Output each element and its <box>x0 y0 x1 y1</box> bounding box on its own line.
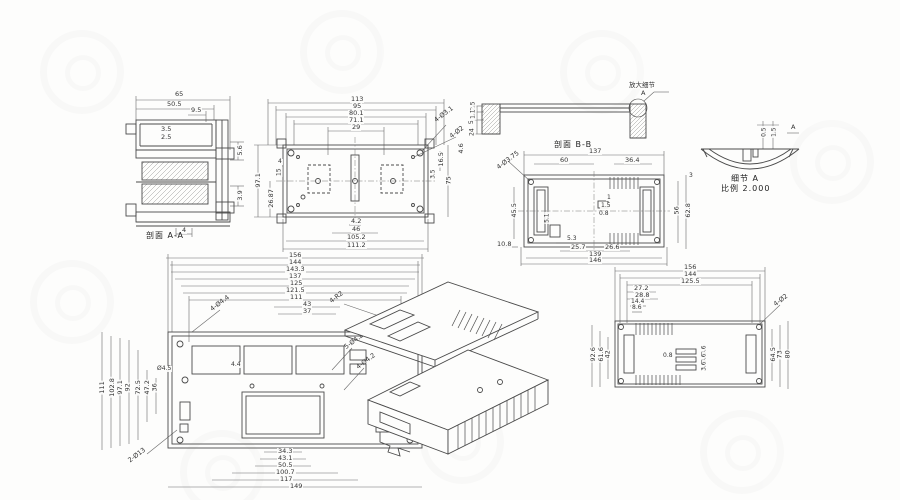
view-base: 137 60 36.4 5.3 25.7 26.6 139 146 45.5 1… <box>494 147 696 267</box>
view-section-aa: 65 50.5 3.5 2.5 9.5 5.6 3.9 4 剖面 A-A <box>118 88 250 240</box>
dim-front-left-102-8: 102.8 <box>109 377 116 398</box>
dim-front-o4-5: Ø4.5 <box>156 366 172 372</box>
back-view-drawing <box>578 263 796 413</box>
dim-base-45-5: 45.5 <box>511 202 518 218</box>
dim-base-1: 1 <box>606 195 612 201</box>
dim-aa-inner-width: 50.5 <box>166 101 182 108</box>
dim-top-4: 4 <box>277 159 283 165</box>
dim-aa-wall: 3.5 <box>160 126 172 133</box>
detail-a-scale: 比例 2.000 <box>721 183 770 194</box>
dim-front-left-111: 111 <box>99 380 106 394</box>
dim-base-3: 3 <box>688 173 694 179</box>
dim-base-1-5: 1.5 <box>600 203 612 209</box>
dim-top-46: 46 <box>351 226 361 233</box>
dim-top-15: 15 <box>277 167 283 177</box>
dim-back-125-5: 125.5 <box>680 278 701 285</box>
dim-back-8-6: 8.6 <box>631 305 643 311</box>
dim-aa-rib: 2.5 <box>160 134 172 141</box>
dim-top-26-87: 26.87 <box>268 188 275 209</box>
dim-detail-0-5: 0.5 <box>762 126 768 138</box>
dim-bb-5: 5 <box>469 119 475 125</box>
dim-back-80: 80 <box>785 349 792 359</box>
view-section-bb: 2.5 1.1 5 24 放大细节 A 剖面 B-B <box>468 82 673 150</box>
dim-aa-outer-width: 65 <box>174 91 184 98</box>
drawing-sheet: 65 50.5 3.5 2.5 9.5 5.6 3.9 4 剖面 A-A <box>0 0 900 500</box>
dim-front-left-72-5: 72.5 <box>135 379 142 395</box>
view-back: 156 144 125.5 27.2 28.8 14.4 8.6 92.6 61… <box>578 263 796 413</box>
dim-aa-right-lower: 3.9 <box>237 189 244 201</box>
view-isometric <box>330 272 565 477</box>
dim-top-97-1: 97.1 <box>255 172 262 188</box>
dim-base-26-6: 26.6 <box>604 244 620 251</box>
detail-callout-ref: A <box>640 90 646 97</box>
dim-base-56: 56 <box>674 205 681 215</box>
section-aa-drawing <box>118 88 250 240</box>
dim-front-left-36: 36 <box>152 382 159 392</box>
dim-base-60: 60 <box>559 157 569 164</box>
dim-top-75: 75 <box>446 175 453 185</box>
watermark-swirl <box>40 30 124 114</box>
dim-back-92-6: 92.6 <box>590 346 597 362</box>
dim-back-3-6-c: 3.6 <box>702 360 708 372</box>
dim-base-0-8: 0.8 <box>598 211 610 217</box>
dim-bb-1-1: 1.1 <box>471 108 477 120</box>
watermark-swirl <box>700 410 784 494</box>
dim-back-73: 73 <box>777 349 784 359</box>
dim-top-16-5: 16.5 <box>438 151 445 167</box>
dim-base-5-3: 5.3 <box>566 236 578 242</box>
dim-top-3-5: 3.5 <box>431 168 437 180</box>
dim-back-42: 42 <box>605 349 612 359</box>
dim-top-4-2: 4.2 <box>350 218 362 225</box>
dim-back-0-8: 0.8 <box>662 353 674 359</box>
view-top: 113 95 80.1 71.1 29 4.2 46 105.2 111.2 9… <box>248 95 476 257</box>
view-detail-a: 0.5 1.5 A 细节 A 比例 2.000 <box>693 103 811 198</box>
dim-front-left-92: 92 <box>125 382 132 392</box>
dim-front-149: 149 <box>289 483 303 490</box>
dim-aa-right-upper: 5.6 <box>237 144 244 156</box>
detail-ref-marker: A <box>790 124 796 131</box>
section-aa-title: 剖面 A-A <box>146 230 184 241</box>
dim-aa-step: 9.5 <box>190 107 202 114</box>
dim-base-5-1: 5.1 <box>545 212 551 224</box>
dim-top-29: 29 <box>351 124 361 131</box>
dim-front-4-4: 4.4 <box>230 362 242 368</box>
dim-base-36-4: 36.4 <box>624 157 640 164</box>
dim-top-111-2: 111.2 <box>346 242 367 249</box>
dim-base-10-8: 10.8 <box>496 241 512 248</box>
detail-callout-label: 放大细节 <box>628 82 656 89</box>
dim-bb-24: 24 <box>470 127 476 137</box>
dim-front-left-97-1: 97.1 <box>117 379 124 395</box>
dim-top-105-2: 105.2 <box>346 234 367 241</box>
isometric-drawing <box>330 272 565 477</box>
dim-base-25-7: 25.7 <box>570 244 586 251</box>
dim-detail-1-5: 1.5 <box>772 126 778 138</box>
dim-front-37: 37 <box>302 308 312 315</box>
base-view-drawing <box>494 147 696 267</box>
watermark-swirl <box>300 10 384 94</box>
dim-top-4-6: 4.6 <box>458 142 465 154</box>
dim-front-111: 111 <box>289 294 303 301</box>
dim-front-left-47-2: 47.2 <box>144 379 151 395</box>
dim-base-62-8: 62.8 <box>685 202 692 218</box>
dim-base-137: 137 <box>588 148 602 155</box>
